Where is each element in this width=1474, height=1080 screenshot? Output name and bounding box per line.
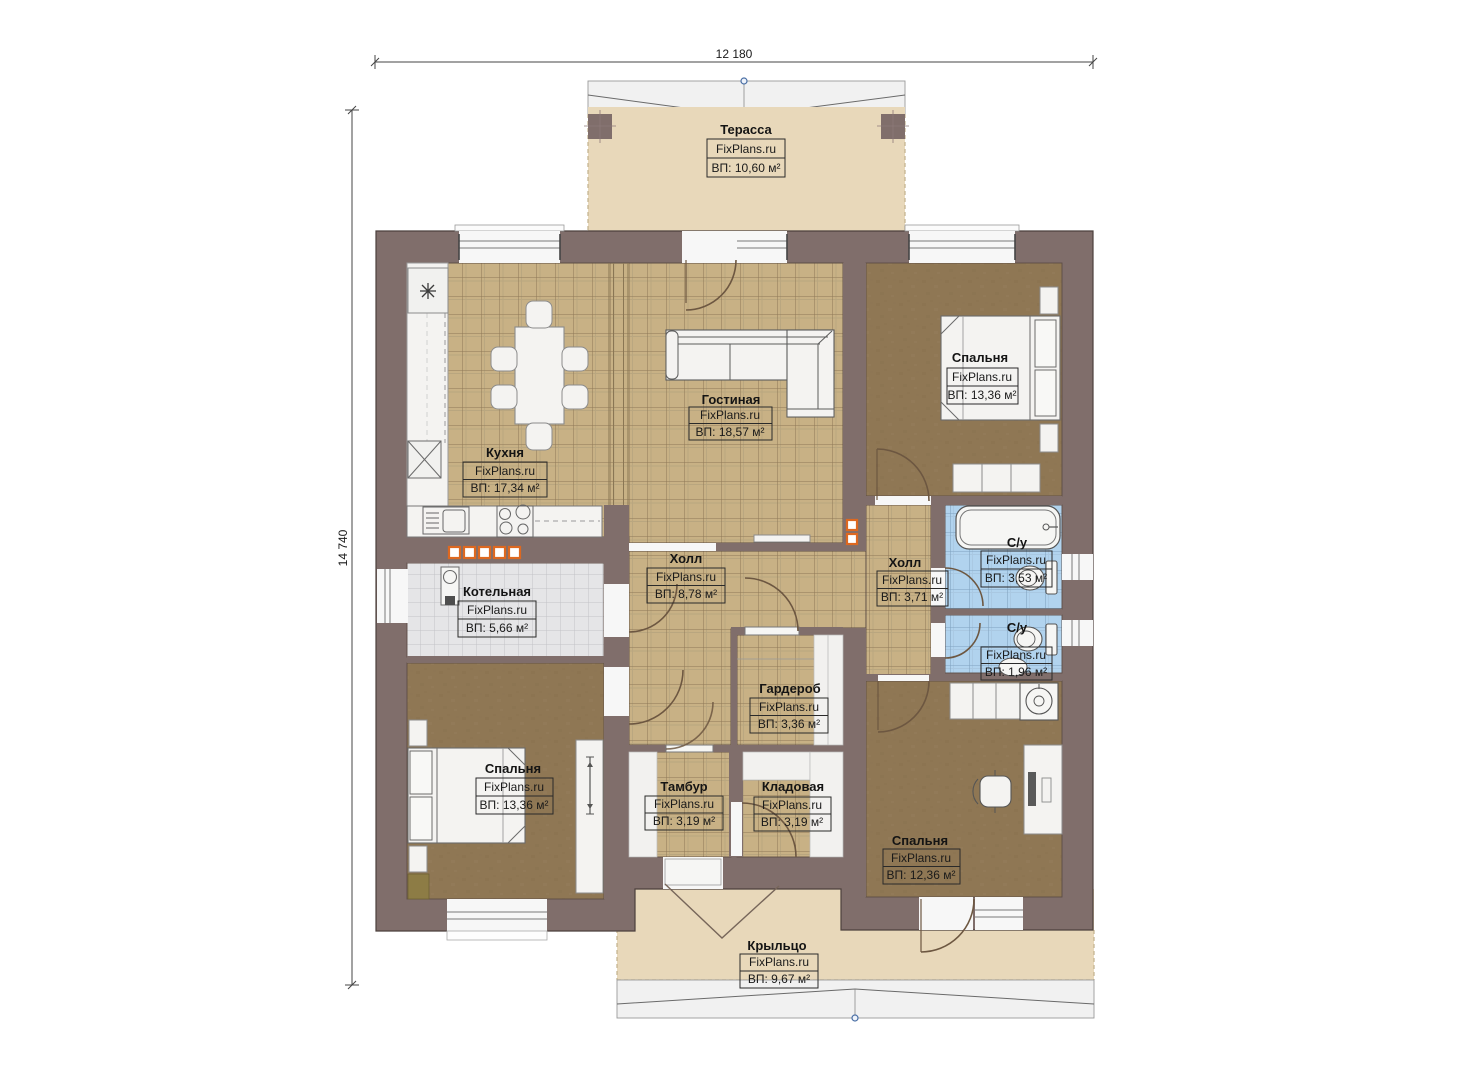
svg-text:FixPlans.ru: FixPlans.ru	[891, 851, 951, 865]
svg-text:С/у: С/у	[1007, 535, 1028, 550]
svg-text:FixPlans.ru: FixPlans.ru	[700, 408, 760, 422]
svg-text:ВП: 10,60 м²: ВП: 10,60 м²	[712, 161, 781, 175]
svg-text:FixPlans.ru: FixPlans.ru	[467, 603, 527, 617]
svg-text:ВП: 1,96 м²: ВП: 1,96 м²	[985, 665, 1047, 679]
svg-text:Терасса: Терасса	[720, 122, 772, 137]
svg-text:FixPlans.ru: FixPlans.ru	[656, 570, 716, 584]
svg-text:ВП: 3,19 м²: ВП: 3,19 м²	[761, 815, 823, 829]
svg-text:ВП: 18,57 м²: ВП: 18,57 м²	[696, 425, 765, 439]
svg-text:Спальня: Спальня	[892, 833, 948, 848]
svg-text:ВП: 13,36 м²: ВП: 13,36 м²	[480, 798, 549, 812]
svg-text:ВП: 3,71 м²: ВП: 3,71 м²	[881, 590, 943, 604]
svg-text:FixPlans.ru: FixPlans.ru	[484, 780, 544, 794]
svg-text:Котельная: Котельная	[463, 584, 531, 599]
svg-text:FixPlans.ru: FixPlans.ru	[882, 573, 942, 587]
svg-text:ВП: 13,36 м²: ВП: 13,36 м²	[948, 388, 1017, 402]
svg-text:Холл: Холл	[670, 551, 703, 566]
svg-text:FixPlans.ru: FixPlans.ru	[749, 955, 809, 969]
svg-text:ВП: 3,36 м²: ВП: 3,36 м²	[758, 717, 820, 731]
svg-text:ВП: 3,53 м²: ВП: 3,53 м²	[985, 571, 1047, 585]
svg-text:FixPlans.ru: FixPlans.ru	[986, 648, 1046, 662]
svg-text:Гостиная: Гостиная	[702, 392, 761, 407]
svg-text:FixPlans.ru: FixPlans.ru	[654, 797, 714, 811]
svg-text:С/у: С/у	[1007, 620, 1028, 635]
svg-text:Спальня: Спальня	[952, 350, 1008, 365]
svg-text:Кладовая: Кладовая	[762, 779, 824, 794]
svg-text:ВП: 8,78 м²: ВП: 8,78 м²	[655, 587, 717, 601]
svg-text:FixPlans.ru: FixPlans.ru	[762, 798, 822, 812]
svg-text:ВП: 5,66 м²: ВП: 5,66 м²	[466, 621, 528, 635]
svg-text:Холл: Холл	[889, 555, 922, 570]
svg-text:FixPlans.ru: FixPlans.ru	[475, 464, 535, 478]
svg-text:Гардероб: Гардероб	[759, 681, 820, 696]
svg-text:ВП: 12,36 м²: ВП: 12,36 м²	[887, 868, 956, 882]
svg-text:12 180: 12 180	[716, 47, 753, 61]
svg-text:FixPlans.ru: FixPlans.ru	[952, 370, 1012, 384]
svg-text:Кухня: Кухня	[486, 445, 524, 460]
svg-text:ВП: 17,34 м²: ВП: 17,34 м²	[471, 481, 540, 495]
svg-text:ВП: 9,67 м²: ВП: 9,67 м²	[748, 972, 810, 986]
svg-text:Крыльцо: Крыльцо	[747, 938, 806, 953]
svg-text:Тамбур: Тамбур	[660, 779, 707, 794]
svg-text:FixPlans.ru: FixPlans.ru	[759, 700, 819, 714]
svg-text:FixPlans.ru: FixPlans.ru	[716, 142, 776, 156]
svg-text:ВП: 3,19 м²: ВП: 3,19 м²	[653, 814, 715, 828]
svg-text:Спальня: Спальня	[485, 761, 541, 776]
svg-text:14 740: 14 740	[336, 529, 350, 566]
svg-text:FixPlans.ru: FixPlans.ru	[986, 553, 1046, 567]
